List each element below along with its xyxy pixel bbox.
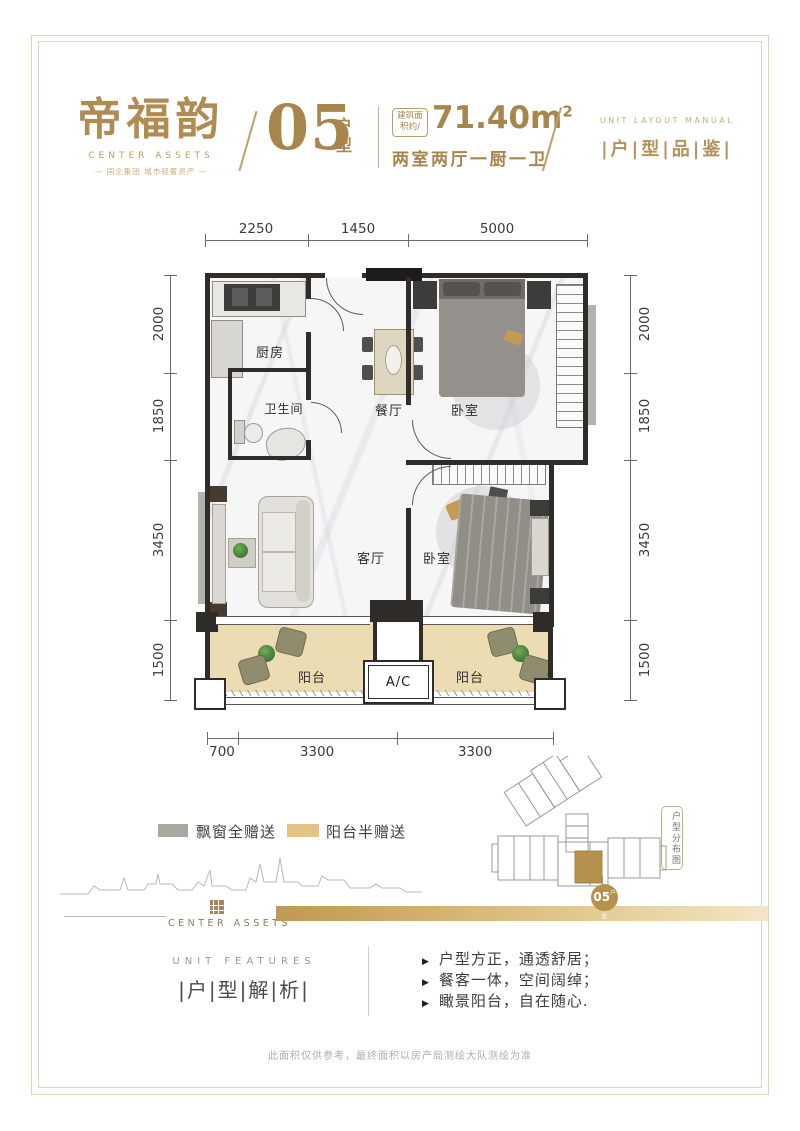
wall bbox=[228, 368, 232, 460]
legend-swatch-balcony bbox=[287, 824, 319, 837]
header-right-cn: |户|型|品|鉴| bbox=[572, 135, 762, 161]
nightstand bbox=[530, 588, 549, 604]
gold-gradient-bar bbox=[276, 906, 768, 921]
feature-text: 餐客一体，空间阔绰； bbox=[439, 971, 599, 989]
dim-line-bottom bbox=[207, 738, 553, 739]
railing-hatch bbox=[210, 690, 370, 696]
feature-item: ▶瞰景阳台，自在随心. bbox=[422, 990, 589, 1011]
stove-burner bbox=[232, 288, 248, 306]
corner-post bbox=[534, 678, 566, 710]
dim-line-right bbox=[630, 275, 631, 700]
ac-niche-wall bbox=[419, 622, 423, 662]
bullet-triangle-icon: ▶ bbox=[422, 978, 430, 988]
window-living bbox=[216, 616, 370, 625]
dim-top-2: 1450 bbox=[328, 221, 388, 237]
wall bbox=[406, 277, 411, 405]
layout-description: 两室两厅一厨一卫 bbox=[392, 145, 548, 170]
dim-left-3: 3450 bbox=[151, 510, 165, 570]
nightstand bbox=[527, 281, 551, 309]
siteplan-badge: 05户型 bbox=[591, 884, 618, 911]
dresser bbox=[531, 518, 549, 576]
wall bbox=[306, 368, 311, 400]
siteplan-side-label: 户型分布图 bbox=[661, 806, 683, 870]
sofa-cushion bbox=[262, 512, 296, 552]
toilet-bowl bbox=[244, 423, 263, 443]
wall bbox=[306, 440, 311, 460]
footer-disclaimer: 此面积仅供参考，最终面积以房产局测绘大队测绘为准 bbox=[0, 1047, 800, 1062]
bed-pillow bbox=[443, 282, 480, 296]
wall bbox=[228, 456, 310, 460]
room-label-balcony-right: 阳台 bbox=[440, 667, 500, 686]
dim-line-top bbox=[205, 240, 588, 241]
room-label-living: 客厅 bbox=[341, 548, 401, 567]
entry-lintel bbox=[366, 268, 422, 281]
legend-label-baywindow: 飘窗全赠送 bbox=[196, 821, 276, 842]
wall bbox=[306, 332, 311, 372]
sofa-cushion bbox=[262, 552, 296, 592]
dining-chair bbox=[362, 337, 373, 352]
dim-right-3: 3450 bbox=[637, 510, 651, 570]
dim-tick bbox=[624, 620, 637, 621]
stove-burner bbox=[256, 288, 272, 306]
dim-tick bbox=[308, 234, 309, 247]
brand-seal-icon bbox=[210, 900, 224, 914]
plant bbox=[233, 543, 248, 558]
feature-item: ▶餐客一体，空间阔绰； bbox=[422, 969, 599, 990]
dim-tick bbox=[624, 700, 637, 701]
dining-chair bbox=[362, 365, 373, 380]
room-label-bathroom: 卫生间 bbox=[254, 400, 314, 417]
room-label-bedroom-top: 卧室 bbox=[435, 400, 495, 419]
dim-right-4: 1500 bbox=[637, 630, 651, 690]
bay-window-bedroom bbox=[588, 305, 596, 425]
skyline-graphic bbox=[60, 856, 422, 898]
dim-tick bbox=[397, 732, 398, 745]
corner-post bbox=[194, 678, 226, 710]
dim-tick bbox=[164, 620, 177, 621]
feature-item: ▶户型方正，通透舒居； bbox=[422, 948, 599, 969]
logo-title: 帝福韵 bbox=[62, 98, 240, 142]
dim-bottom-1: 700 bbox=[192, 744, 252, 760]
logo-tagline: — 国企集团 城市轻奢资产 — bbox=[62, 166, 240, 177]
legend-label-balcony: 阳台半赠送 bbox=[326, 821, 406, 842]
ac-niche-wall bbox=[373, 622, 377, 662]
ac-label: A/C bbox=[368, 665, 429, 699]
wall bbox=[583, 273, 588, 465]
dim-tick bbox=[164, 275, 177, 276]
features-title-cn: |户|型|解|析| bbox=[118, 974, 370, 1003]
feature-text: 户型方正，通透舒居； bbox=[439, 950, 599, 968]
dim-left-2: 1850 bbox=[151, 386, 165, 446]
features-title-en: UNIT FEATURES bbox=[118, 956, 370, 967]
dim-top-3: 5000 bbox=[467, 221, 527, 237]
ac-unit: A/C bbox=[363, 660, 434, 704]
feature-text: 瞰景阳台，自在随心. bbox=[439, 992, 589, 1010]
sofa-back bbox=[296, 500, 310, 602]
dim-bottom-2: 3300 bbox=[287, 744, 347, 760]
tv-speaker bbox=[209, 486, 227, 502]
floor-void-patch bbox=[553, 465, 588, 623]
dim-tick bbox=[553, 732, 554, 745]
flyer-page: 帝福韵 CENTER ASSETS — 国企集团 城市轻奢资产 — 05 户型 … bbox=[0, 0, 800, 1131]
tv-cabinet bbox=[212, 504, 226, 604]
bed-pillow bbox=[484, 282, 521, 296]
dim-tick bbox=[205, 234, 206, 247]
dim-tick bbox=[164, 373, 177, 374]
logo-block: 帝福韵 CENTER ASSETS — 国企集团 城市轻奢资产 — bbox=[62, 98, 240, 177]
room-label-bedroom-bottom: 卧室 bbox=[407, 548, 467, 567]
wardrobe bbox=[556, 284, 584, 428]
window-bedroom bbox=[423, 616, 533, 625]
dining-table-decor bbox=[385, 345, 402, 375]
wall bbox=[406, 460, 588, 465]
header-divider bbox=[378, 106, 379, 168]
dim-tick bbox=[164, 460, 177, 461]
dim-right-1: 2000 bbox=[637, 294, 651, 354]
dim-tick bbox=[587, 234, 588, 247]
dim-tick bbox=[624, 275, 637, 276]
area-label-box: 建筑面积约/ bbox=[392, 108, 428, 137]
balcony-side-wall bbox=[548, 622, 553, 680]
nightstand bbox=[413, 281, 437, 309]
features-divider bbox=[368, 946, 369, 1016]
railing-hatch bbox=[424, 690, 548, 696]
logo-subtitle: CENTER ASSETS bbox=[62, 151, 240, 161]
dim-line-left bbox=[170, 275, 171, 700]
bullet-triangle-icon: ▶ bbox=[422, 999, 430, 1009]
area-value: 71.40m2 bbox=[432, 103, 573, 134]
dim-top-1: 2250 bbox=[226, 221, 286, 237]
wall bbox=[228, 368, 310, 372]
dim-tick bbox=[624, 460, 637, 461]
wall bbox=[205, 273, 210, 628]
room-label-kitchen: 厨房 bbox=[240, 342, 300, 361]
dim-tick bbox=[408, 234, 409, 247]
brand-underline bbox=[64, 916, 166, 917]
wall bbox=[549, 460, 554, 627]
room-label-balcony-left: 阳台 bbox=[282, 667, 342, 686]
header-right-en: UNIT LAYOUT MANUAL bbox=[572, 116, 762, 125]
siteplan-graphic bbox=[488, 756, 673, 906]
ac-niche-wall bbox=[370, 600, 423, 622]
legend-swatch-baywindow bbox=[158, 824, 188, 837]
unit-number-suffix: 户型 bbox=[336, 116, 356, 156]
nightstand bbox=[530, 500, 549, 516]
dim-left-4: 1500 bbox=[151, 630, 165, 690]
dim-tick bbox=[624, 373, 637, 374]
dim-left-1: 2000 bbox=[151, 294, 165, 354]
header-right-block: UNIT LAYOUT MANUAL |户|型|品|鉴| bbox=[572, 116, 762, 161]
room-label-dining: 餐厅 bbox=[359, 400, 419, 419]
balcony-side-wall bbox=[205, 622, 210, 680]
brand-name: CENTER ASSETS bbox=[168, 918, 291, 929]
dim-tick bbox=[164, 700, 177, 701]
bullet-triangle-icon: ▶ bbox=[422, 957, 430, 967]
badge-number: 05 bbox=[593, 890, 610, 904]
dim-right-2: 1850 bbox=[637, 386, 651, 446]
area-number: 71.40m bbox=[432, 100, 562, 136]
wall bbox=[306, 277, 311, 299]
